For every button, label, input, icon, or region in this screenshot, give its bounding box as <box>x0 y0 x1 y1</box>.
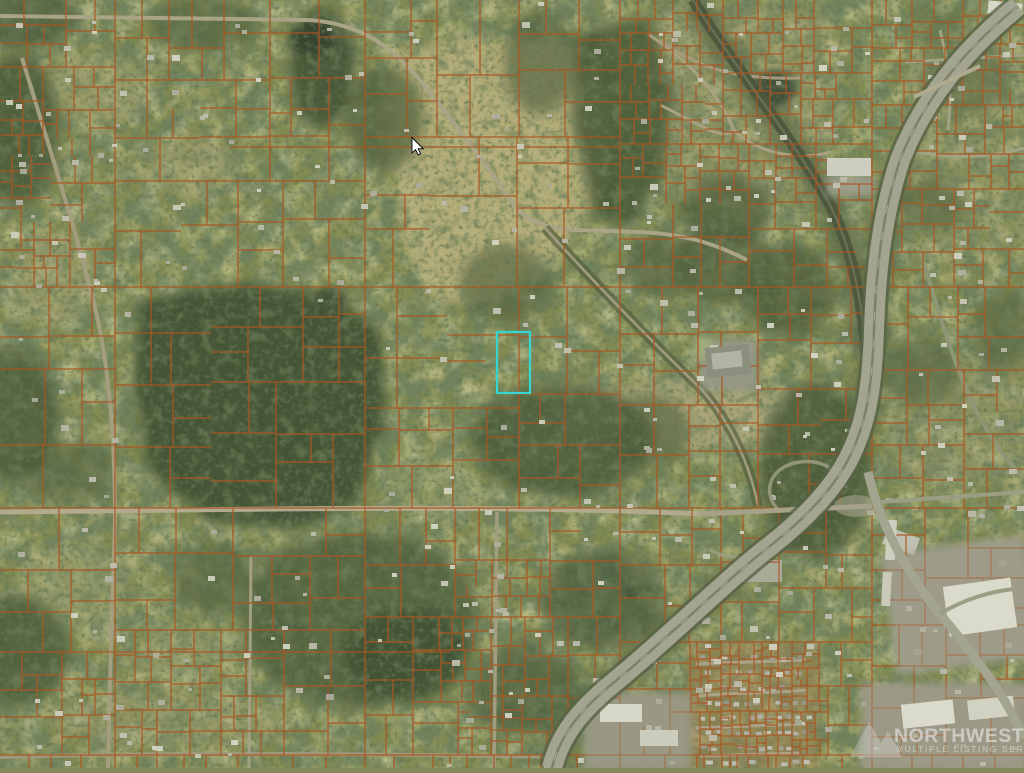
svg-text:MULTIPLE LISTING SERV: MULTIPLE LISTING SERV <box>896 744 1024 754</box>
